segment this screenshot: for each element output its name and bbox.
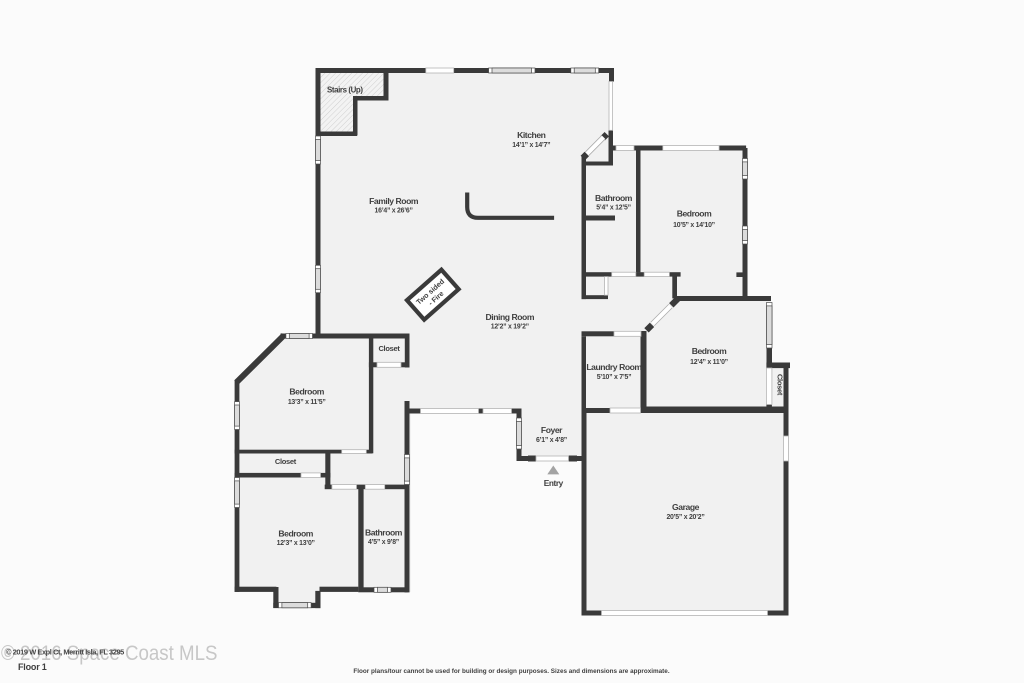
svg-text:13’3” x 11’5”: 13’3” x 11’5” — [288, 399, 326, 406]
svg-text:5’10” x 7’5”: 5’10” x 7’5” — [597, 374, 632, 381]
svg-text:12’4” x 11’0”: 12’4” x 11’0” — [690, 359, 728, 366]
svg-text:Kitchen: Kitchen — [517, 130, 546, 140]
svg-text:12’2” x 19’2”: 12’2” x 19’2” — [491, 323, 529, 330]
svg-text:Dining Room: Dining Room — [486, 312, 535, 322]
svg-text:6’1” x 4’8”: 6’1” x 4’8” — [536, 437, 567, 444]
svg-text:Bathroom: Bathroom — [365, 528, 403, 538]
svg-text:Floor plans/tour cannot be use: Floor plans/tour cannot be used for buil… — [353, 668, 669, 675]
svg-text:Foyer: Foyer — [541, 425, 563, 435]
svg-text:© 2019 W Expl Ct, Merritt Isla: © 2019 W Expl Ct, Merritt Isla, FL 3295 — [6, 648, 124, 657]
svg-text:20’5” x 20’2”: 20’5” x 20’2” — [666, 514, 704, 521]
svg-text:Floor 1: Floor 1 — [18, 662, 47, 672]
svg-text:Garage: Garage — [672, 502, 700, 512]
svg-text:Bedroom: Bedroom — [289, 387, 324, 397]
svg-text:Stairs (Up): Stairs (Up) — [327, 86, 363, 95]
svg-text:Family Room: Family Room — [369, 196, 419, 206]
svg-text:Bathroom: Bathroom — [595, 193, 633, 203]
svg-text:Entry: Entry — [544, 478, 564, 488]
svg-text:Closet: Closet — [275, 457, 297, 466]
svg-text:10’5” x 14’10”: 10’5” x 14’10” — [673, 222, 715, 229]
svg-text:14’1” x 14’7”: 14’1” x 14’7” — [512, 142, 550, 149]
svg-text:Closet: Closet — [776, 374, 785, 396]
svg-text:Bedroom: Bedroom — [692, 346, 727, 356]
svg-text:Closet: Closet — [378, 344, 400, 353]
svg-text:Bedroom: Bedroom — [278, 529, 313, 539]
svg-text:Bedroom: Bedroom — [677, 209, 712, 219]
svg-text:5’4” x 12’5”: 5’4” x 12’5” — [596, 205, 631, 212]
svg-text:16’4” x 26’6”: 16’4” x 26’6” — [375, 208, 413, 215]
svg-text:Laundry Room: Laundry Room — [586, 362, 642, 372]
svg-text:4’5” x 9’8”: 4’5” x 9’8” — [368, 539, 399, 546]
svg-text:12’3” x 13’0”: 12’3” x 13’0” — [277, 540, 315, 547]
